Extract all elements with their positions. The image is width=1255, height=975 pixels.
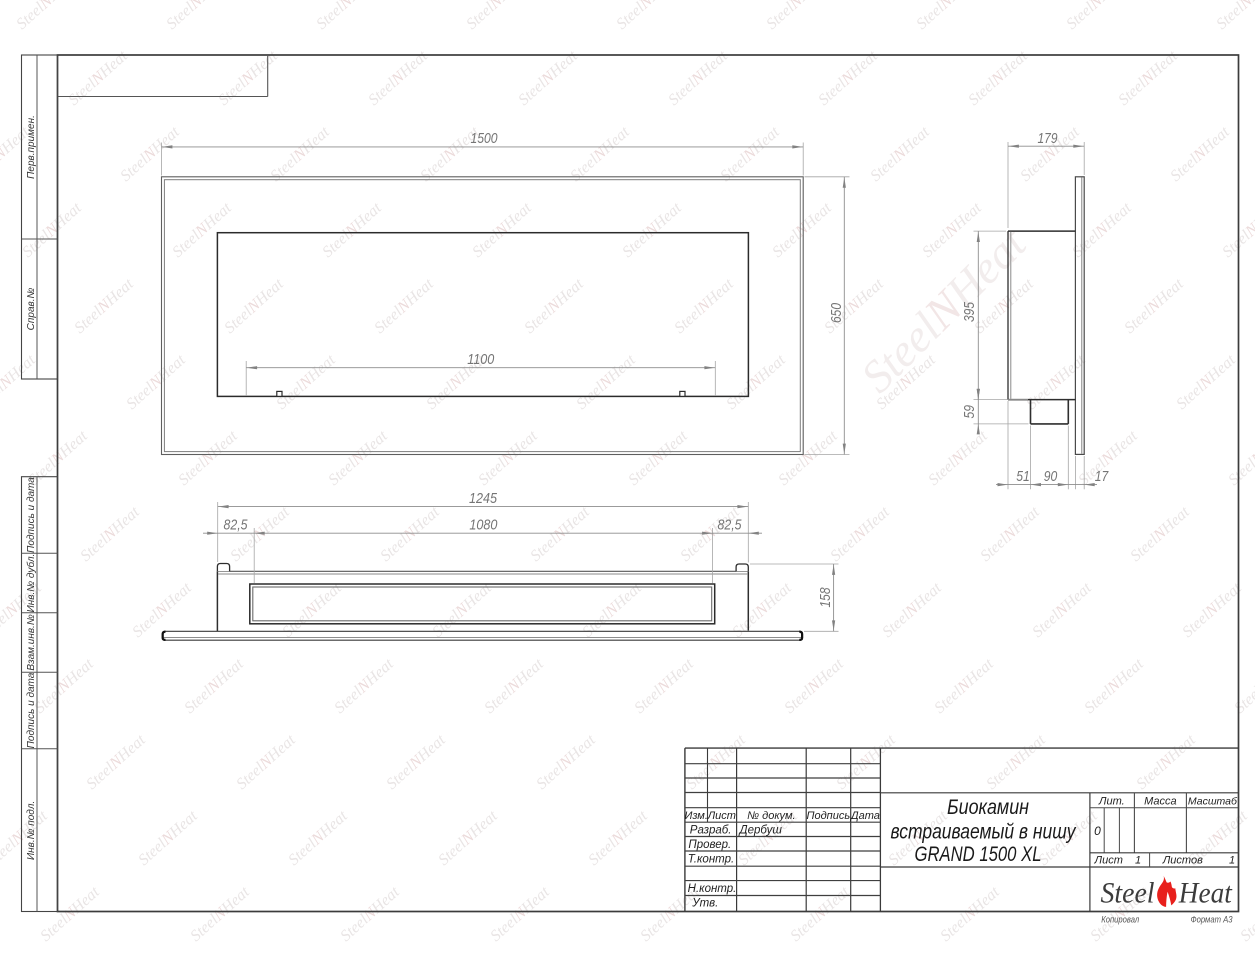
svg-text:Лист: Лист bbox=[1094, 855, 1123, 867]
svg-text:1500: 1500 bbox=[471, 130, 499, 147]
svg-text:158: 158 bbox=[817, 587, 834, 608]
svg-text:395: 395 bbox=[961, 301, 978, 322]
svg-text:Справ.№: Справ.№ bbox=[26, 287, 37, 330]
svg-text:Копировал: Копировал bbox=[1101, 915, 1140, 926]
svg-text:51: 51 bbox=[1016, 468, 1030, 485]
svg-text:1: 1 bbox=[1229, 855, 1235, 867]
svg-text:Подпись и дата: Подпись и дата bbox=[26, 672, 37, 748]
svg-text:Подпись и дата: Подпись и дата bbox=[26, 477, 37, 553]
svg-text:1: 1 bbox=[1135, 855, 1141, 867]
svg-text:Биокамин: Биокамин bbox=[947, 796, 1029, 819]
svg-text:17: 17 bbox=[1095, 468, 1109, 485]
svg-text:Подпись: Подпись bbox=[806, 810, 850, 822]
svg-text:№ докум.: № докум. bbox=[747, 810, 795, 822]
svg-text:Steel: Steel bbox=[1101, 877, 1155, 910]
svg-text:1245: 1245 bbox=[469, 490, 498, 507]
svg-text:Провер.: Провер. bbox=[688, 839, 731, 851]
svg-text:GRAND 1500 XL: GRAND 1500 XL bbox=[915, 843, 1042, 866]
svg-text:59: 59 bbox=[961, 404, 978, 418]
svg-text:82,5: 82,5 bbox=[224, 517, 249, 534]
svg-text:Изм.: Изм. bbox=[684, 810, 707, 822]
svg-text:Масштаб: Масштаб bbox=[1188, 795, 1238, 807]
svg-text:Дербуш: Дербуш bbox=[737, 825, 782, 837]
svg-text:1080: 1080 bbox=[469, 517, 498, 534]
svg-text:Перв.примен.: Перв.примен. bbox=[26, 115, 37, 179]
svg-text:Н.контр.: Н.контр. bbox=[688, 883, 737, 895]
svg-text:82,5: 82,5 bbox=[718, 517, 743, 534]
svg-text:Утв.: Утв. bbox=[691, 898, 718, 910]
svg-text:Листов: Листов bbox=[1162, 855, 1203, 867]
svg-text:Лит.: Лит. bbox=[1098, 795, 1125, 807]
svg-text:Масса: Масса bbox=[1144, 795, 1177, 807]
svg-text:Дата: Дата bbox=[849, 810, 880, 822]
svg-text:Взам.инв.№: Взам.инв.№ bbox=[26, 614, 37, 670]
svg-text:Т.контр.: Т.контр. bbox=[688, 854, 734, 866]
svg-text:Heat: Heat bbox=[1178, 877, 1233, 910]
svg-text:90: 90 bbox=[1044, 468, 1058, 485]
svg-text:179: 179 bbox=[1038, 130, 1059, 147]
svg-text:Разраб.: Разраб. bbox=[690, 825, 732, 837]
svg-text:Формат А3: Формат А3 bbox=[1191, 915, 1234, 926]
svg-text:Инв.№ дубл.: Инв.№ дубл. bbox=[25, 554, 37, 613]
svg-text:650: 650 bbox=[828, 302, 845, 323]
svg-text:Инв.№ подл.: Инв.№ подл. bbox=[26, 801, 37, 860]
svg-text:0: 0 bbox=[1094, 824, 1101, 838]
svg-text:Лист: Лист bbox=[707, 810, 736, 822]
svg-text:встраиваемый в нишу: встраиваемый в нишу bbox=[891, 821, 1077, 844]
svg-text:1100: 1100 bbox=[467, 351, 495, 368]
